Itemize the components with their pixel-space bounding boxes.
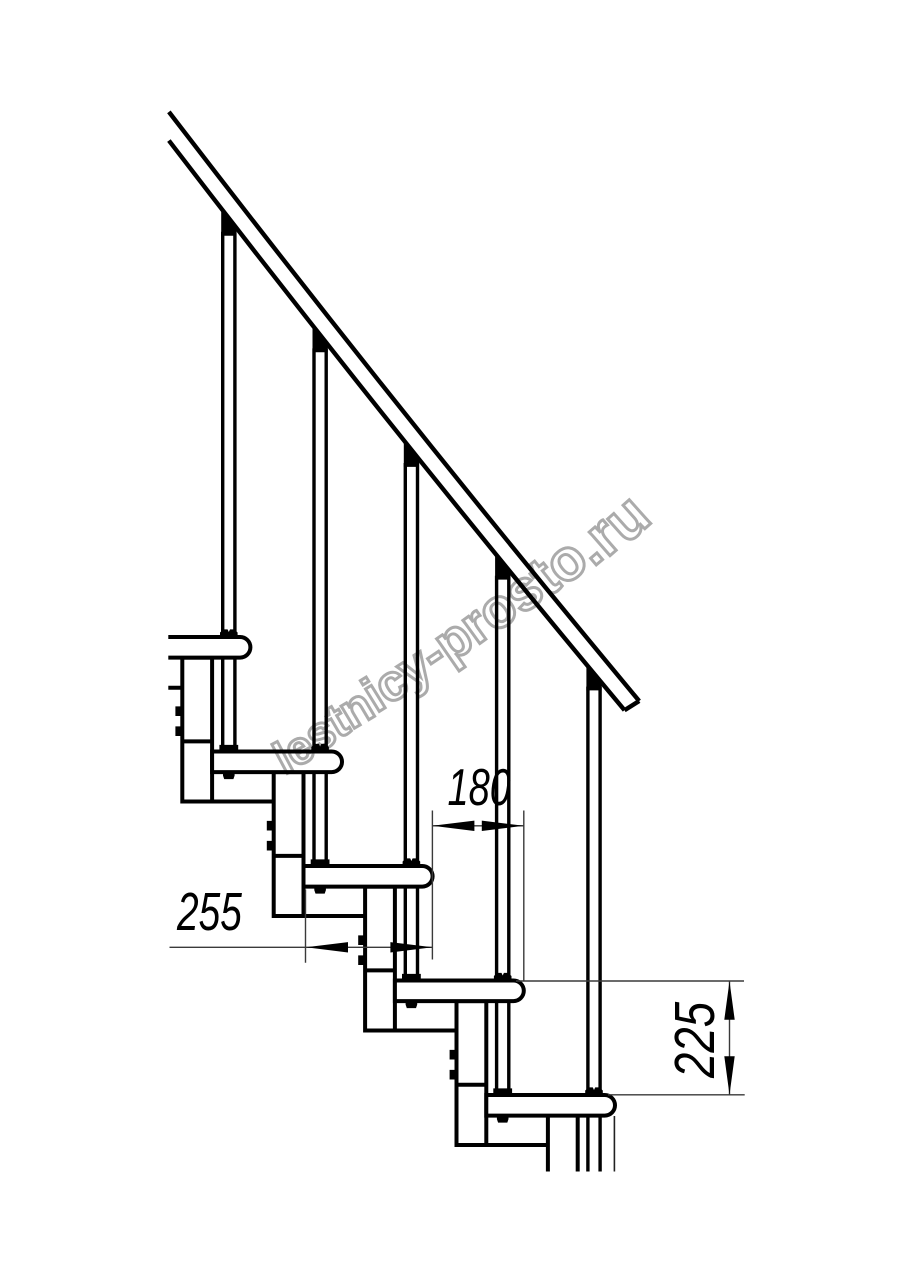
svg-text:180: 180: [448, 758, 511, 816]
svg-text:225: 225: [662, 1002, 726, 1079]
svg-text:255: 255: [176, 881, 242, 942]
